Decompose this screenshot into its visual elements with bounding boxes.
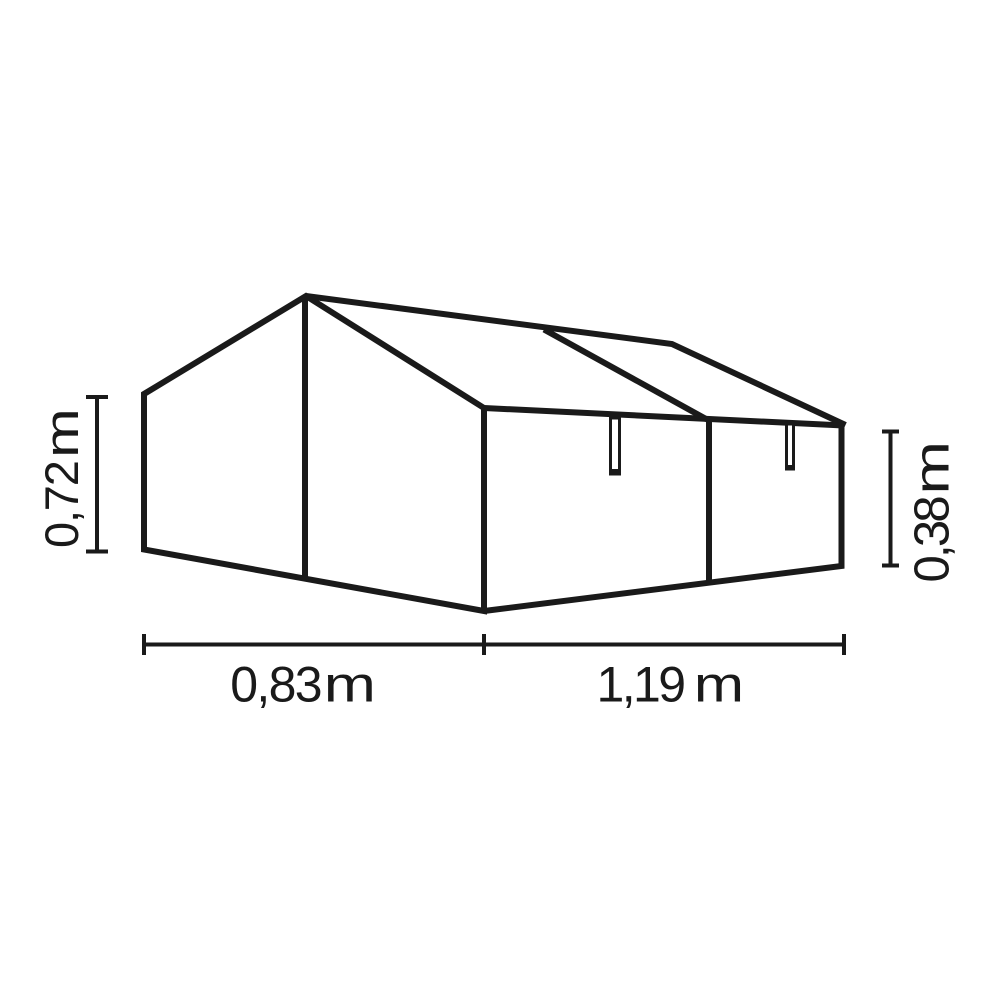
svg-text:0,38m: 0,38m (906, 445, 960, 583)
svg-text:1,19m: 1,19m (597, 656, 741, 712)
svg-text:0,72m: 0,72m (35, 410, 88, 548)
svg-text:0,83m: 0,83m (230, 656, 374, 712)
